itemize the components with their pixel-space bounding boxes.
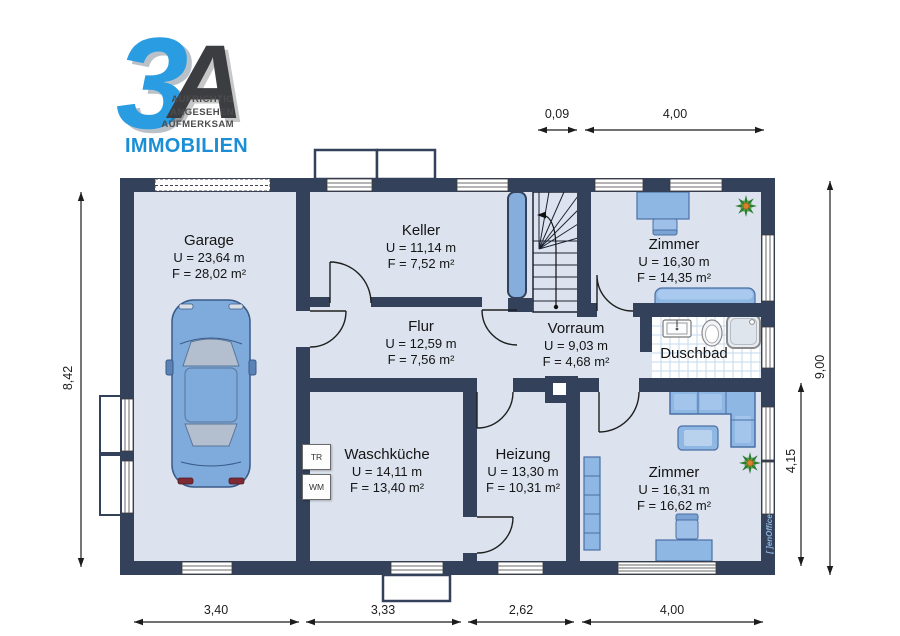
staircase: [508, 192, 578, 312]
light-well: [100, 396, 121, 453]
room-perimeter: U = 16,30 m: [637, 254, 711, 270]
tagline-line: AUFMERKSAM: [148, 119, 234, 132]
room-perimeter: U = 9,03 m: [543, 338, 610, 354]
washer-box: WM: [302, 474, 331, 500]
light-well: [377, 150, 435, 179]
room-name: Vorraum: [543, 320, 610, 338]
room-area: F = 14,35 m²: [637, 270, 711, 286]
room-name: Flur: [385, 318, 456, 336]
room-name: Garage: [172, 232, 246, 250]
room-perimeter: U = 23,64 m: [172, 250, 246, 266]
dim-bottom-2: 3,33: [353, 603, 413, 617]
room-name: Heizung: [486, 446, 560, 464]
room-area: F = 7,56 m²: [385, 352, 456, 368]
dim-bottom-4: 4,00: [642, 603, 702, 617]
plant-icon: [735, 195, 757, 217]
room-label-garage: Garage U = 23,64 m F = 28,02 m²: [172, 232, 246, 281]
coffee-table: [678, 426, 718, 450]
light-well: [315, 150, 377, 179]
room-name: Zimmer: [637, 464, 711, 482]
plant-icon: [739, 452, 761, 474]
room-area: F = 28,02 m²: [172, 266, 246, 282]
dim-bottom-3: 2,62: [491, 603, 551, 617]
room-area: F = 10,31 m²: [486, 480, 560, 496]
dim-right-partial: 4,15: [784, 431, 798, 491]
room-label-zimmer-bottom: Zimmer U = 16,31 m F = 16,62 m²: [637, 464, 711, 513]
room-label-flur: Flur U = 12,59 m F = 7,56 m²: [385, 318, 456, 367]
light-well: [100, 455, 121, 515]
tagline-line: ANGESEHEN: [148, 107, 234, 120]
tagline-line: AUFRICHTIG: [148, 94, 234, 107]
room-area: F = 16,62 m²: [637, 498, 711, 514]
room-perimeter: U = 13,30 m: [486, 464, 560, 480]
room-label-zimmer-top: Zimmer U = 16,30 m F = 14,35 m²: [637, 236, 711, 285]
floorplan-page: 3 A AUFRICHTIG ANGESEHEN AUFMERKSAM IMMO…: [0, 0, 900, 636]
dim-top-small: 0,09: [527, 107, 587, 121]
dim-right-total: 9,00: [813, 337, 827, 397]
sink: [663, 320, 691, 337]
room-label-keller: Keller U = 11,14 m F = 7,52 m²: [386, 222, 456, 271]
shelf: [584, 457, 600, 550]
room-perimeter: U = 14,11 m: [344, 464, 429, 480]
room-perimeter: U = 12,59 m: [385, 336, 456, 352]
room-area: F = 7,52 m²: [386, 256, 456, 272]
light-well: [383, 575, 450, 601]
shower: [727, 315, 760, 348]
room-name: Keller: [386, 222, 456, 240]
dryer-box: TR: [302, 444, 331, 470]
logo-brand: IMMOBILIEN: [125, 135, 248, 158]
toilet: [702, 320, 722, 346]
stair-landing-strip: [508, 192, 526, 298]
room-perimeter: U = 16,31 m: [637, 482, 711, 498]
dim-left-height: 8,42: [61, 348, 75, 408]
room-label-heizung: Heizung U = 13,30 m F = 10,31 m²: [486, 446, 560, 495]
dim-bottom-1: 3,40: [186, 603, 246, 617]
dim-top-right: 4,00: [645, 107, 705, 121]
room-label-vorraum: Vorraum U = 9,03 m F = 4,68 m²: [543, 320, 610, 369]
logo-tagline: AUFRICHTIG ANGESEHEN AUFMERKSAM: [148, 94, 234, 132]
software-watermark: [ ]enOffice: [765, 498, 777, 570]
room-name: Zimmer: [637, 236, 711, 254]
room-area: F = 4,68 m²: [543, 354, 610, 370]
room-area: F = 13,40 m²: [344, 480, 429, 496]
room-name: Waschküche: [344, 446, 429, 464]
room-label-waschkueche: Waschküche U = 14,11 m F = 13,40 m²: [344, 446, 429, 495]
garage-door: [155, 179, 270, 191]
room-name: Duschbad: [660, 345, 728, 363]
room-perimeter: U = 11,14 m: [386, 240, 456, 256]
chimney: [545, 376, 578, 403]
car-icon: [166, 300, 256, 487]
room-label-duschbad: Duschbad: [660, 345, 728, 363]
